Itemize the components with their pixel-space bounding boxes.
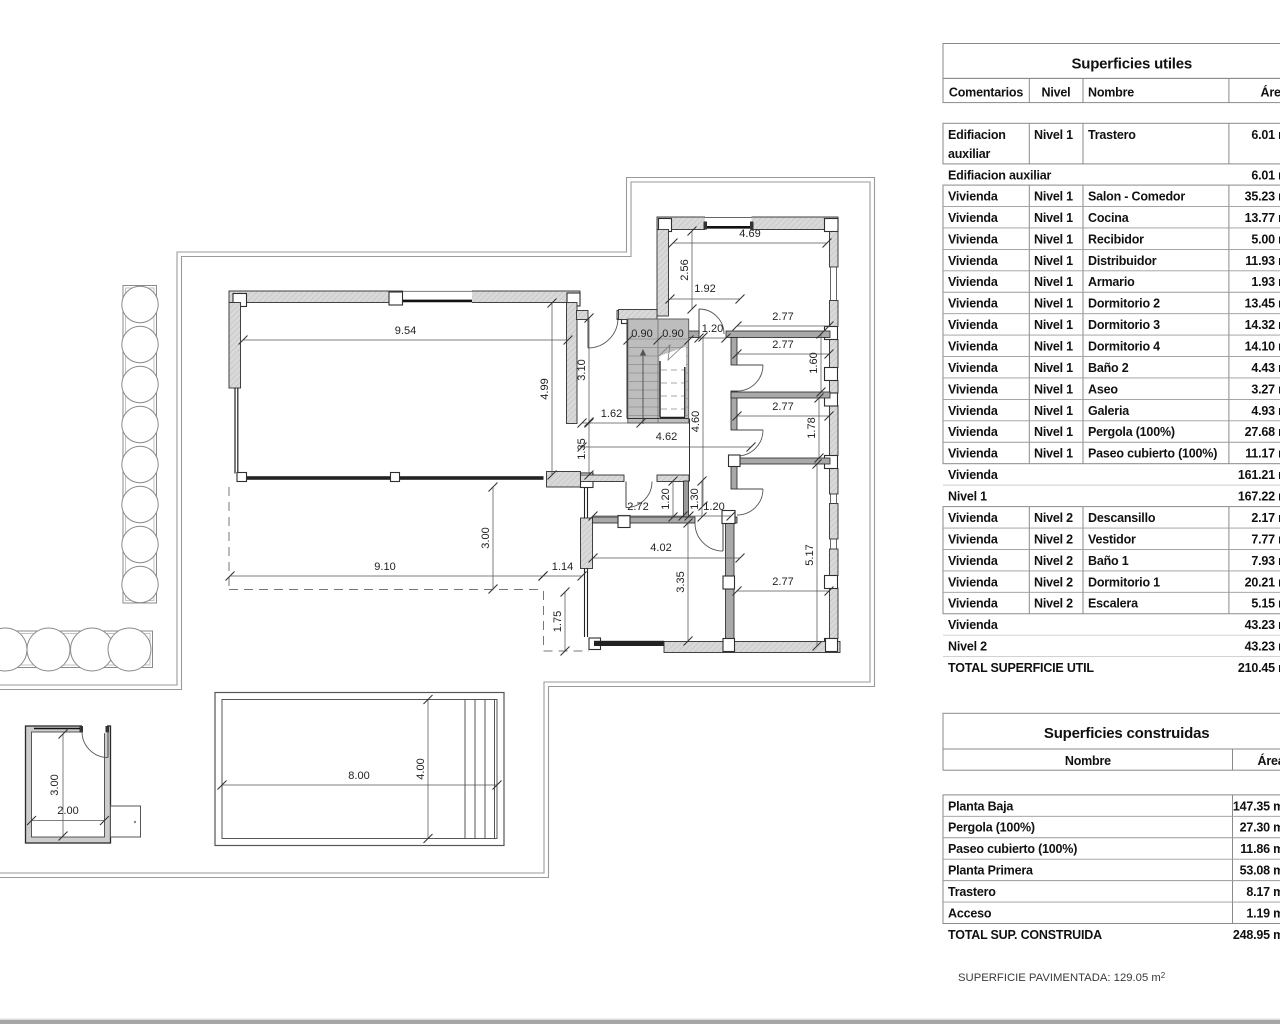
svg-text:1.30: 1.30 [689,488,701,509]
svg-text:Nivel 2: Nivel 2 [948,640,987,654]
svg-text:Vivienda: Vivienda [948,340,999,354]
svg-text:4.69: 4.69 [739,228,760,240]
svg-text:7.93 m²: 7.93 m² [1251,554,1280,568]
svg-text:4.62: 4.62 [656,431,677,443]
svg-text:1.93 m²: 1.93 m² [1251,275,1280,289]
svg-text:Recibidor: Recibidor [1088,232,1144,246]
svg-text:Aseo: Aseo [1088,382,1118,396]
svg-text:Vivienda: Vivienda [948,511,999,525]
svg-text:2.77: 2.77 [772,339,793,351]
svg-text:Dormitorio 4: Dormitorio 4 [1088,340,1160,354]
svg-text:Nivel 1: Nivel 1 [1034,404,1073,418]
svg-text:Nivel 1: Nivel 1 [1034,254,1073,268]
svg-text:Planta Primera: Planta Primera [948,864,1034,878]
svg-text:2.56: 2.56 [679,259,691,280]
svg-text:2.77: 2.77 [772,576,793,588]
svg-text:14.10 m²: 14.10 m² [1245,340,1280,354]
svg-text:8.17 m²: 8.17 m² [1246,885,1280,899]
svg-text:3.10: 3.10 [576,359,588,380]
svg-text:2.77: 2.77 [772,401,793,413]
svg-text:Dormitorio 1: Dormitorio 1 [1088,575,1160,589]
svg-text:3.00: 3.00 [49,774,61,795]
svg-text:Vivienda: Vivienda [948,425,999,439]
svg-text:Nivel 1: Nivel 1 [1034,128,1073,142]
svg-text:Nivel 1: Nivel 1 [1034,232,1073,246]
svg-text:4.99: 4.99 [539,378,551,399]
svg-text:Vivienda: Vivienda [948,447,999,461]
svg-text:Vestidor: Vestidor [1088,532,1136,546]
svg-text:Nivel 2: Nivel 2 [1034,511,1073,525]
svg-text:Trastero: Trastero [1088,128,1136,142]
svg-text:Nivel 1: Nivel 1 [1034,382,1073,396]
svg-text:4.93 m²: 4.93 m² [1251,404,1280,418]
svg-text:Vivienda: Vivienda [948,275,999,289]
svg-text:43.23 m²: 43.23 m² [1245,618,1280,632]
svg-text:Dormitorio 3: Dormitorio 3 [1088,318,1160,332]
svg-text:5.00 m²: 5.00 m² [1251,232,1280,246]
svg-text:2.77: 2.77 [772,311,793,323]
svg-text:Área: Área [1258,753,1280,768]
svg-text:27.68 m²: 27.68 m² [1245,425,1280,439]
svg-text:11.17 m²: 11.17 m² [1245,447,1280,461]
svg-text:4.60: 4.60 [690,411,702,432]
svg-text:13.77 m²: 13.77 m² [1245,211,1280,225]
svg-text:Vivienda: Vivienda [948,532,999,546]
svg-text:Baño 2: Baño 2 [1088,361,1129,375]
svg-text:Vivienda: Vivienda [948,597,999,611]
svg-text:Área: Área [1261,85,1280,100]
svg-text:1.78: 1.78 [806,417,818,438]
svg-text:TOTAL SUP. CONSTRUIDA: TOTAL SUP. CONSTRUIDA [948,928,1102,942]
svg-text:4.43 m²: 4.43 m² [1251,361,1280,375]
svg-text:Nivel 1: Nivel 1 [1034,447,1073,461]
svg-text:Nivel 2: Nivel 2 [1034,575,1073,589]
svg-text:9.10: 9.10 [374,561,395,573]
svg-text:Vivienda: Vivienda [948,232,999,246]
svg-text:Galeria: Galeria [1088,404,1130,418]
svg-text:3.35: 3.35 [675,571,687,592]
svg-text:SUPERFICIE PAVIMENTADA: 129.05: SUPERFICIE PAVIMENTADA: 129.05 m2 [958,971,1166,984]
svg-text:Nivel 1: Nivel 1 [1034,318,1073,332]
svg-text:2.72: 2.72 [627,501,648,513]
svg-text:Baño 1: Baño 1 [1088,554,1129,568]
svg-text:Nivel 1: Nivel 1 [1034,297,1073,311]
svg-text:Nivel 1: Nivel 1 [948,490,987,504]
svg-text:1.20: 1.20 [702,323,723,335]
svg-text:Nivel 2: Nivel 2 [1034,532,1073,546]
svg-text:11.93 m²: 11.93 m² [1245,254,1280,268]
svg-text:Superficies construidas: Superficies construidas [1044,725,1209,742]
svg-text:161.21 m²: 161.21 m² [1238,468,1280,482]
svg-text:Edifiacion: Edifiacion [948,128,1006,142]
svg-text:Acceso: Acceso [948,906,992,920]
svg-text:Vivienda: Vivienda [948,575,999,589]
svg-text:Nivel 1: Nivel 1 [1034,190,1073,204]
svg-text:Nivel 1: Nivel 1 [1034,361,1073,375]
svg-text:auxiliar: auxiliar [948,147,991,161]
svg-text:1.92: 1.92 [694,283,715,295]
svg-text:53.08 m²: 53.08 m² [1240,864,1280,878]
svg-text:6.01 m²: 6.01 m² [1251,169,1280,183]
svg-text:0.90: 0.90 [662,328,683,340]
svg-text:14.32 m²: 14.32 m² [1245,318,1280,332]
svg-text:Nivel 1: Nivel 1 [1034,211,1073,225]
svg-text:Nivel 1: Nivel 1 [1034,340,1073,354]
svg-text:6.01 m²: 6.01 m² [1251,128,1280,142]
svg-text:1.20: 1.20 [660,488,672,509]
svg-text:Pergola (100%): Pergola (100%) [1088,425,1175,439]
svg-text:9.54: 9.54 [395,325,416,337]
svg-text:1.60: 1.60 [808,352,820,373]
svg-text:Vivienda: Vivienda [948,318,999,332]
svg-text:1.62: 1.62 [601,408,622,420]
svg-text:TOTAL SUPERFICIE UTIL: TOTAL SUPERFICIE UTIL [948,661,1094,675]
svg-text:248.95 m²: 248.95 m² [1233,928,1280,942]
svg-text:167.22 m²: 167.22 m² [1238,490,1280,504]
svg-text:Armario: Armario [1088,275,1135,289]
svg-text:Nivel 1: Nivel 1 [1034,425,1073,439]
svg-text:1.20: 1.20 [703,501,724,513]
svg-text:Dormitorio 2: Dormitorio 2 [1088,297,1160,311]
svg-text:Nivel 1: Nivel 1 [1034,275,1073,289]
svg-text:Salon - Comedor: Salon - Comedor [1088,190,1185,204]
svg-text:5.17: 5.17 [804,544,816,565]
svg-text:3.00: 3.00 [480,527,492,548]
svg-text:1.75: 1.75 [552,611,564,632]
svg-text:Nivel 2: Nivel 2 [1034,597,1073,611]
svg-text:Nivel: Nivel [1042,86,1071,100]
svg-text:2.00: 2.00 [57,805,78,817]
svg-text:35.23 m²: 35.23 m² [1245,190,1280,204]
svg-text:2.17 m²: 2.17 m² [1251,511,1280,525]
svg-text:Vivienda: Vivienda [948,382,999,396]
svg-text:Distribuidor: Distribuidor [1088,254,1157,268]
svg-text:Nombre: Nombre [1088,86,1134,100]
svg-text:Vivienda: Vivienda [948,468,999,482]
svg-text:Vivienda: Vivienda [948,297,999,311]
svg-text:4.02: 4.02 [650,542,671,554]
svg-text:Edifiacion auxiliar: Edifiacion auxiliar [948,169,1052,183]
svg-text:Paseo cubierto (100%): Paseo cubierto (100%) [948,842,1077,856]
svg-text:27.30 m²: 27.30 m² [1240,821,1280,835]
svg-text:20.21 m²: 20.21 m² [1245,575,1280,589]
svg-text:Vivienda: Vivienda [948,618,999,632]
svg-text:5.15 m²: 5.15 m² [1251,597,1280,611]
svg-text:1.14: 1.14 [552,561,573,573]
svg-text:Vivienda: Vivienda [948,190,999,204]
svg-text:13.45 m²: 13.45 m² [1245,297,1280,311]
svg-text:Planta Baja: Planta Baja [948,799,1014,813]
svg-text:0.90: 0.90 [631,328,652,340]
svg-text:Vivienda: Vivienda [948,404,999,418]
svg-text:1.19 m²: 1.19 m² [1246,906,1280,920]
svg-text:Escalera: Escalera [1088,597,1139,611]
svg-text:Cocina: Cocina [1088,211,1130,225]
svg-text:147.35 m²: 147.35 m² [1233,799,1280,813]
svg-text:Vivienda: Vivienda [948,254,999,268]
svg-text:8.00: 8.00 [348,770,369,782]
svg-text:3.27 m²: 3.27 m² [1251,382,1280,396]
svg-text:210.45 m²: 210.45 m² [1238,661,1280,675]
svg-text:43.23 m²: 43.23 m² [1245,640,1280,654]
svg-text:7.77 m²: 7.77 m² [1251,532,1280,546]
svg-text:Pergola (100%): Pergola (100%) [948,821,1035,835]
svg-text:11.86 m²: 11.86 m² [1240,842,1280,856]
svg-text:Vivienda: Vivienda [948,211,999,225]
svg-text:4.00: 4.00 [415,758,427,779]
svg-text:Trastero: Trastero [948,885,996,899]
svg-text:Vivienda: Vivienda [948,361,999,375]
svg-text:Comentarios: Comentarios [949,86,1023,100]
svg-text:Vivienda: Vivienda [948,554,999,568]
svg-text:Paseo cubierto (100%): Paseo cubierto (100%) [1088,447,1217,461]
svg-text:Descansillo: Descansillo [1088,511,1156,525]
svg-text:Superficies utiles: Superficies utiles [1071,56,1192,73]
svg-text:Nombre: Nombre [1065,754,1111,768]
svg-text:Nivel 2: Nivel 2 [1034,554,1073,568]
svg-text:1.35: 1.35 [576,438,588,459]
